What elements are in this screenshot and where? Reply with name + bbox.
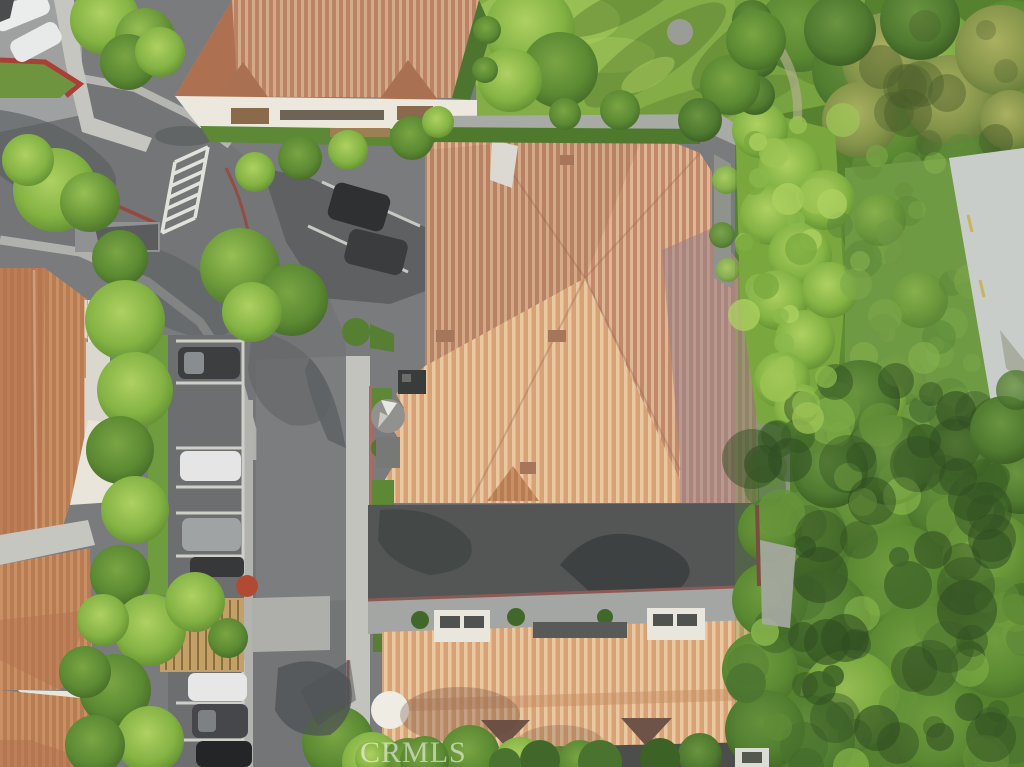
svg-text:CRMLS: CRMLS xyxy=(360,736,467,767)
